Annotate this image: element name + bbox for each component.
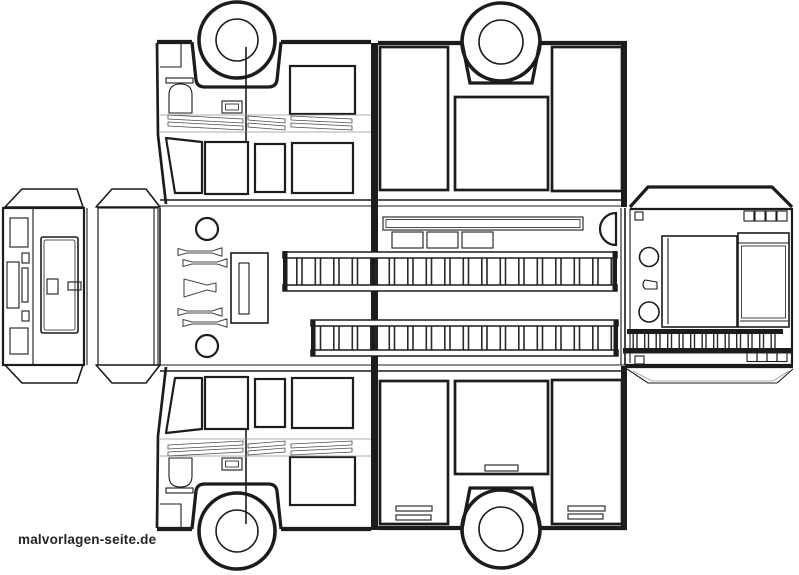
- roof-hatch: [231, 253, 268, 323]
- right-cut-edge-bottom: [621, 366, 627, 530]
- siren: [643, 280, 657, 289]
- glue-tab: [5, 365, 83, 383]
- rear-door-handle: [47, 279, 58, 294]
- tail-light-bottom: [10, 328, 28, 354]
- papercraft-page: malvorlagen-seite.de: [0, 0, 799, 575]
- ladder-mount: [738, 233, 789, 327]
- right-flap: [623, 187, 793, 383]
- glue-tab: [96, 189, 160, 207]
- roof-vents-top: [744, 211, 787, 221]
- truck-cab-side-bottom: [157, 365, 371, 569]
- ladder-lower: [311, 320, 618, 357]
- rear-panel-details: [7, 218, 81, 354]
- roof-vents-bottom: [747, 353, 787, 362]
- hose-nozzle: [184, 279, 216, 297]
- glue-tab: [5, 189, 83, 207]
- equipment-rack: [383, 217, 583, 248]
- rear-blank-panel: [98, 208, 158, 365]
- truck-body-side-top: [378, 3, 627, 206]
- truck-body-side-bottom: [378, 365, 627, 568]
- beacon-light: [639, 302, 659, 322]
- truck-cab-side-top: [157, 2, 371, 206]
- glue-tab: [96, 365, 160, 383]
- glue-tab: [630, 187, 792, 207]
- fire-truck-papercraft-template: [0, 0, 799, 575]
- roof-light-bottom: [196, 335, 218, 357]
- roof-tools: [178, 248, 227, 327]
- beacon-light: [640, 248, 659, 267]
- tail-light-top: [10, 218, 28, 247]
- left-flap: [3, 189, 160, 383]
- rear-door-panel: [3, 208, 84, 365]
- roof-hatch-top-view: [662, 236, 737, 327]
- ladder-upper: [283, 251, 617, 291]
- roof-light-top: [196, 218, 218, 240]
- right-cut-edge-top: [621, 43, 627, 207]
- stored-ladder: [623, 329, 793, 354]
- roof-dome: [600, 213, 616, 245]
- roof-panel: [154, 208, 625, 365]
- site-watermark: malvorlagen-seite.de: [18, 532, 156, 547]
